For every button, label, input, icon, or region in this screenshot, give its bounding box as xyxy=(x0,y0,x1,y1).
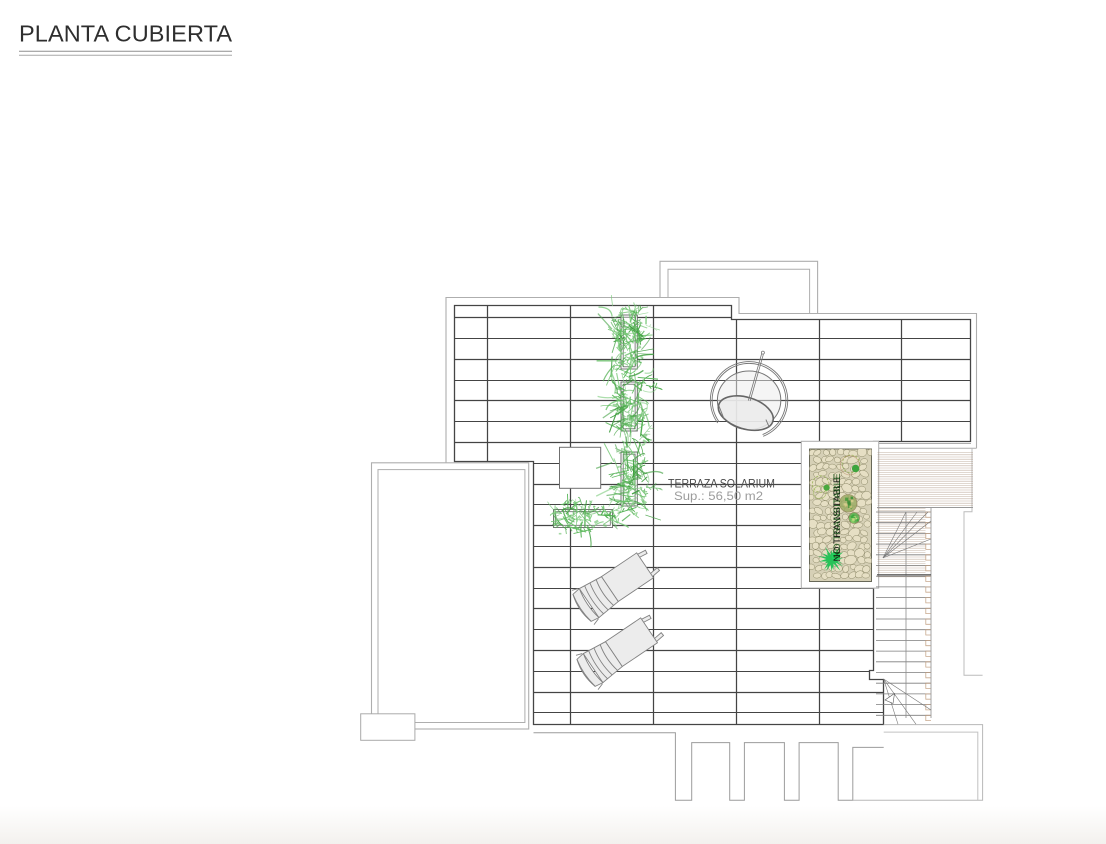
svg-text:Sup.: 56,50 m2: Sup.: 56,50 m2 xyxy=(674,490,763,503)
svg-text:NO TRANSITABLE: NO TRANSITABLE xyxy=(832,473,842,558)
svg-text:TERRAZA SOLARIUM: TERRAZA SOLARIUM xyxy=(668,478,775,491)
svg-text:PLANTA CUBIERTA: PLANTA CUBIERTA xyxy=(19,21,232,47)
